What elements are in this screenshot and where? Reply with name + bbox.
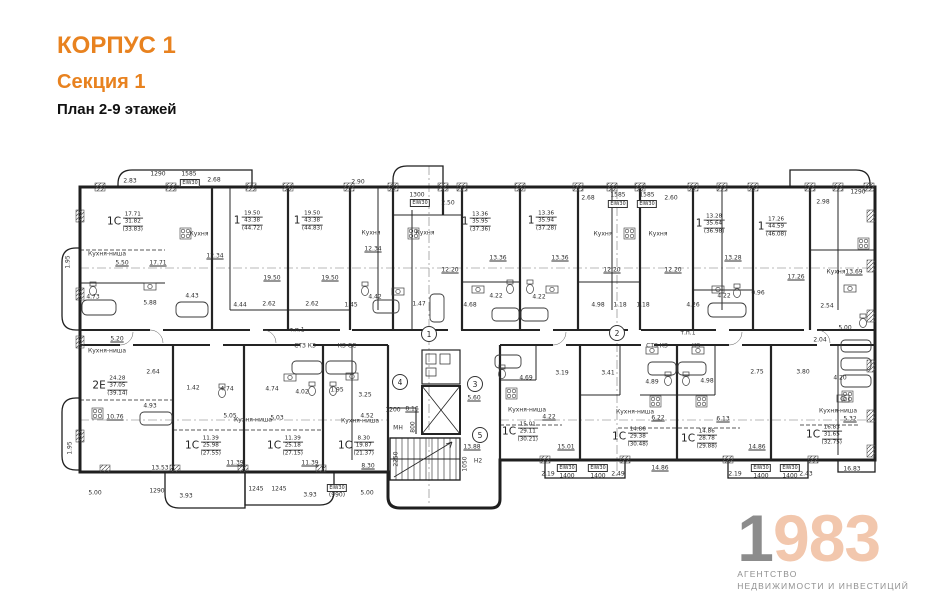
wall-piers — [76, 183, 875, 472]
logo-year-first-digit: 1 — [737, 501, 773, 575]
page: КОРПУС 1 Секция 1 План 2-9 этажей — [0, 0, 941, 600]
logo-year-rest: 983 — [773, 501, 880, 575]
stair-core — [390, 350, 460, 480]
axis-lines — [80, 166, 875, 505]
door-arcs — [120, 330, 830, 345]
toilet-icon — [90, 280, 867, 398]
agency-logo: 1983 АГЕНТСТВО НЕДВИЖИМОСТИ И ИНВЕСТИЦИЙ — [737, 510, 909, 592]
logo-tagline-line2: НЕДВИЖИМОСТИ И ИНВЕСТИЦИЙ — [737, 581, 909, 592]
interior-walls — [80, 187, 875, 472]
logo-year: 1983 — [737, 510, 909, 566]
